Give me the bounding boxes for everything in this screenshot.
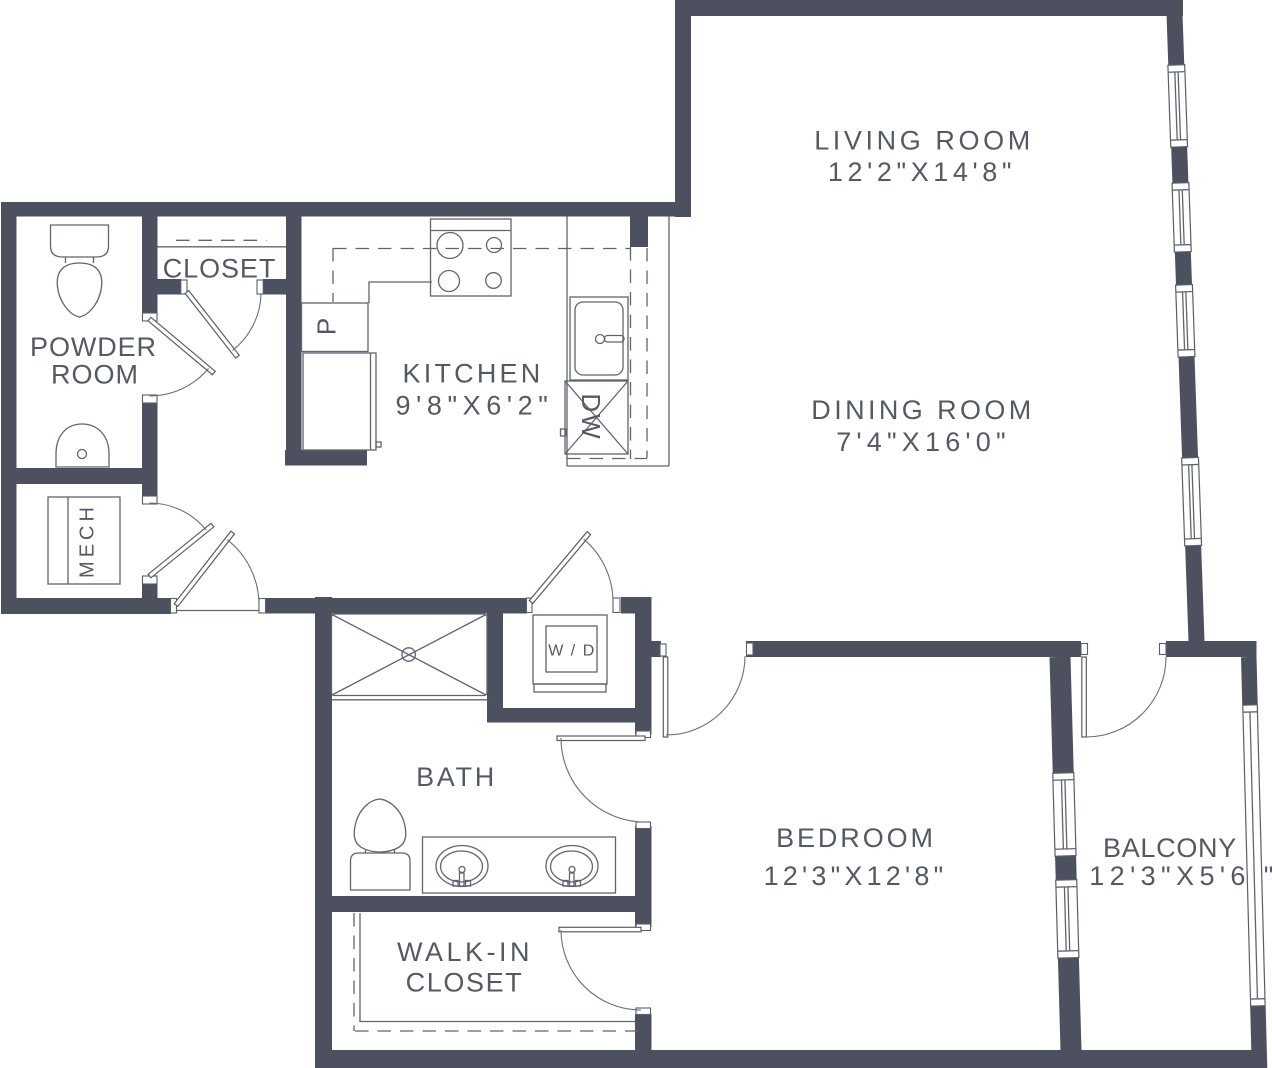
svg-text:KITCHEN: KITCHEN: [403, 359, 544, 389]
svg-text:POWDER: POWDER: [30, 332, 157, 362]
svg-text:12'3"X5'6 ": 12'3"X5'6 ": [1089, 861, 1272, 891]
svg-text:9'8"X6'2": 9'8"X6'2": [396, 391, 554, 421]
svg-text:12'3"X12'8": 12'3"X12'8": [764, 861, 948, 891]
svg-text:BALCONY: BALCONY: [1103, 833, 1237, 863]
svg-text:DINING ROOM: DINING ROOM: [811, 395, 1034, 425]
svg-text:ROOM: ROOM: [51, 360, 139, 390]
svg-text:7'4"X16'0": 7'4"X16'0": [836, 427, 1011, 457]
svg-text:BEDROOM: BEDROOM: [776, 823, 936, 853]
svg-text:LIVING ROOM: LIVING ROOM: [814, 126, 1034, 156]
svg-text:CLOSET: CLOSET: [163, 254, 276, 284]
svg-text:CLOSET: CLOSET: [406, 968, 524, 998]
svg-text:P: P: [312, 316, 342, 335]
svg-text:BATH: BATH: [416, 762, 497, 792]
svg-text:DW: DW: [576, 393, 606, 440]
svg-text:MECH: MECH: [77, 503, 99, 578]
svg-text:W / D: W / D: [548, 643, 596, 660]
svg-text:WALK-IN: WALK-IN: [397, 937, 533, 967]
svg-text:12'2"X14'8": 12'2"X14'8": [828, 157, 1016, 187]
